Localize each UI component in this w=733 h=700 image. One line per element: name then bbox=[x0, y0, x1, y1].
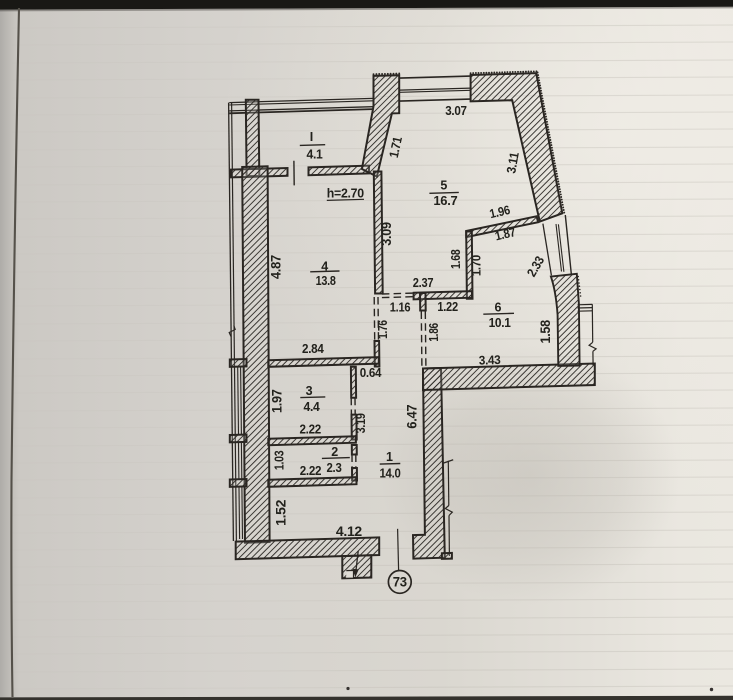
svg-text:1.76: 1.76 bbox=[376, 320, 390, 339]
svg-text:6: 6 bbox=[494, 301, 501, 315]
svg-text:2.22: 2.22 bbox=[299, 422, 321, 436]
svg-text:1.68: 1.68 bbox=[448, 249, 463, 269]
svg-text:4.12: 4.12 bbox=[336, 524, 363, 539]
svg-text:13.8: 13.8 bbox=[316, 274, 336, 288]
svg-text:3.09: 3.09 bbox=[379, 222, 394, 246]
svg-text:1.03: 1.03 bbox=[271, 451, 286, 471]
svg-text:2.3: 2.3 bbox=[327, 461, 342, 475]
svg-text:3.07: 3.07 bbox=[445, 104, 467, 118]
svg-text:2.84: 2.84 bbox=[302, 342, 324, 356]
svg-text:4.1: 4.1 bbox=[307, 147, 323, 161]
svg-text:1.52: 1.52 bbox=[274, 499, 289, 526]
svg-text:3.19: 3.19 bbox=[353, 413, 368, 433]
svg-text:1: 1 bbox=[386, 450, 393, 464]
svg-text:1.70: 1.70 bbox=[468, 255, 483, 276]
svg-text:h=2.70: h=2.70 bbox=[327, 186, 364, 201]
svg-text:14.0: 14.0 bbox=[380, 466, 401, 480]
svg-text:4.4: 4.4 bbox=[304, 400, 320, 414]
svg-text:5: 5 bbox=[440, 178, 447, 192]
svg-text:4.87: 4.87 bbox=[269, 254, 284, 279]
svg-text:2.37: 2.37 bbox=[413, 276, 434, 290]
svg-text:0.64: 0.64 bbox=[360, 366, 382, 380]
svg-text:1.58: 1.58 bbox=[538, 319, 553, 343]
svg-text:1.97: 1.97 bbox=[270, 389, 285, 413]
svg-text:1.16: 1.16 bbox=[390, 301, 411, 315]
svg-text:1.86: 1.86 bbox=[427, 323, 441, 342]
svg-text:6.47: 6.47 bbox=[405, 404, 420, 429]
svg-text:2: 2 bbox=[331, 445, 338, 459]
svg-text:3: 3 bbox=[306, 384, 313, 398]
svg-text:73: 73 bbox=[393, 575, 408, 590]
svg-text:3.43: 3.43 bbox=[479, 353, 501, 368]
svg-text:10.1: 10.1 bbox=[489, 316, 511, 330]
svg-text:1.22: 1.22 bbox=[437, 300, 458, 314]
svg-text:16.7: 16.7 bbox=[433, 194, 457, 208]
svg-text:2.22: 2.22 bbox=[300, 464, 322, 478]
svg-text:I: I bbox=[310, 130, 313, 144]
